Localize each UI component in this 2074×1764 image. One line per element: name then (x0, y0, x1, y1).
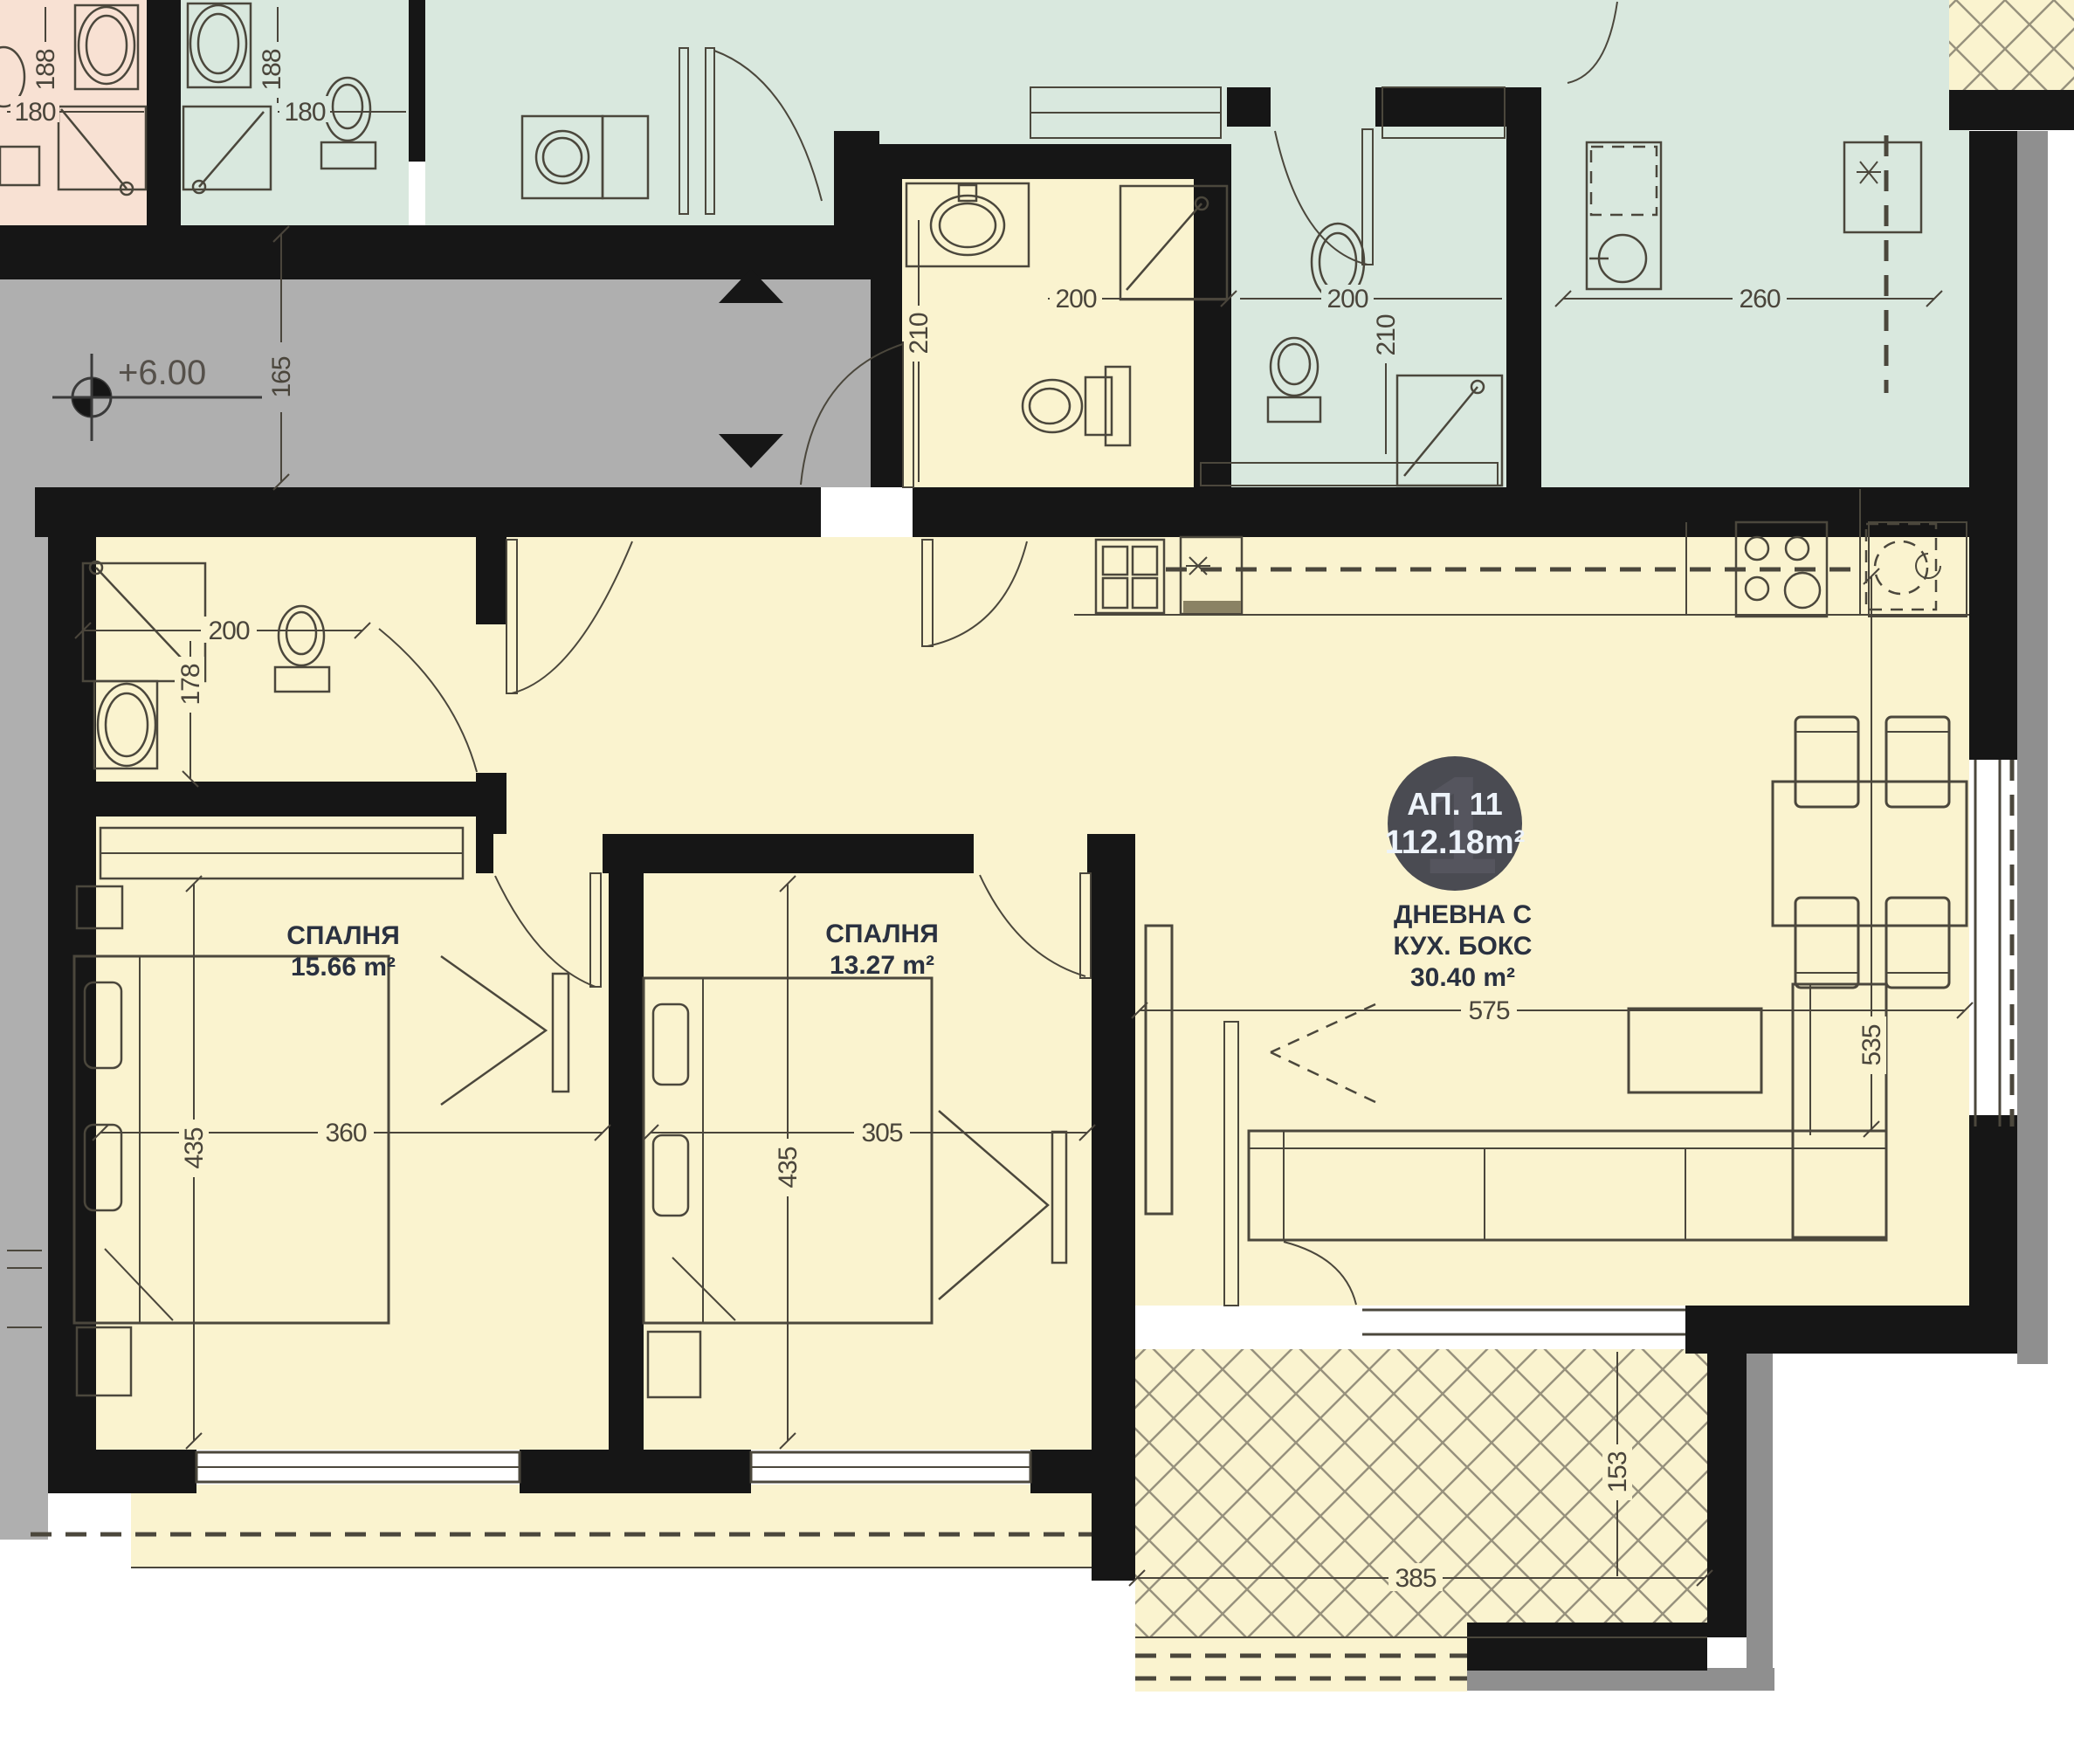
svg-text:210: 210 (1372, 314, 1401, 355)
right-exterior-trim (2017, 131, 2048, 1364)
svg-text:200: 200 (1055, 285, 1096, 314)
living-room-floor (1135, 537, 1969, 1306)
bathroom1-top-wall (879, 144, 1231, 179)
bathroom1-floor (902, 179, 1194, 487)
svg-text:180: 180 (284, 98, 325, 127)
balcony-door-window (1362, 1310, 1685, 1334)
inter-bedroom-wall (609, 873, 644, 1493)
bath2-bottom-wall (48, 782, 476, 817)
svg-text:180: 180 (14, 98, 55, 127)
bathd-top-wall-a (1227, 87, 1271, 127)
bedroom2-name: СПАЛНЯ (825, 920, 939, 948)
bath2-right-wall-top (476, 537, 506, 624)
bathd-top-wall-b (1375, 87, 1506, 127)
level-value: +6.00 (118, 354, 206, 392)
bedroom1-name: СПАЛНЯ (286, 921, 400, 950)
bedroom2-window (751, 1452, 1030, 1482)
bedroom1-area: 15.66 m² (291, 953, 396, 982)
green-laundry-floor (425, 0, 834, 230)
balcony-trim-bottom (1467, 1668, 1774, 1691)
balcony-bottom-wall (1467, 1623, 1707, 1671)
svg-text:188: 188 (31, 49, 60, 90)
svg-text:535: 535 (1857, 1024, 1886, 1065)
svg-text:260: 260 (1739, 285, 1780, 314)
corridor-bottom-wall-left (35, 487, 821, 537)
floor-plan-drawing: +6.00 (0, 0, 2074, 1764)
bedroom-window-sill (131, 1485, 1092, 1568)
svg-text:188: 188 (258, 49, 286, 90)
bottom-wall-c (1030, 1450, 1135, 1493)
right-wall-upper (1969, 131, 2017, 760)
balcony-trim-right (1747, 1349, 1773, 1690)
bedrooms-top-wall-b (603, 834, 974, 873)
badge-title: АП. 11 (1407, 786, 1502, 822)
svg-text:435: 435 (774, 1147, 803, 1188)
floor-plan-page: +6.00 (0, 0, 2074, 1764)
bedrooms-top-wall-c (1087, 834, 1135, 873)
ne-balcony-hatch (1949, 0, 2074, 90)
apartment-top-wall (913, 487, 2017, 537)
bedroom1-window (196, 1452, 520, 1482)
living-name-line1: ДНЕВНА С (1394, 900, 1532, 929)
living-area: 30.40 m² (1410, 963, 1515, 992)
svg-text:360: 360 (325, 1119, 366, 1147)
bath2-right-wall-bottom (476, 773, 506, 834)
living-name-line2: КУХ. БОКС (1394, 932, 1533, 961)
svg-text:210: 210 (905, 313, 934, 354)
balcony-right-wall (1707, 1349, 1747, 1637)
bottom-wall-a (48, 1450, 196, 1493)
svg-text:575: 575 (1468, 996, 1509, 1025)
balcony-sill (1135, 1637, 1467, 1692)
bedroom2-area: 13.27 m² (830, 951, 934, 980)
bottom-wall-b (520, 1450, 751, 1493)
living-bottom-wall (1685, 1306, 2017, 1354)
greenb-c-wall (409, 0, 425, 162)
bathd-right-wall (1506, 87, 1541, 487)
svg-text:165: 165 (267, 356, 296, 397)
svg-text:153: 153 (1603, 1451, 1632, 1492)
living-right-window (1975, 760, 2012, 1127)
svg-text:200: 200 (1326, 285, 1368, 314)
left-exterior-strip (0, 487, 48, 1540)
svg-text:178: 178 (176, 664, 205, 705)
bathroom1-right-wall (1194, 144, 1231, 487)
badge-area: 112.18m² (1385, 824, 1526, 861)
svg-text:305: 305 (861, 1119, 902, 1147)
svg-text:435: 435 (180, 1127, 209, 1168)
ne-wall (1949, 90, 2074, 130)
left-exterior-wall (48, 487, 96, 1493)
hallway-floor-patch (96, 817, 476, 878)
bedrooms-top-wall-a (476, 834, 493, 873)
pink-green-wall (147, 0, 181, 225)
bathroom1-left-wall (871, 179, 902, 487)
corridor-top-wall (0, 225, 879, 279)
svg-text:200: 200 (208, 617, 249, 645)
svg-text:385: 385 (1395, 1564, 1436, 1593)
